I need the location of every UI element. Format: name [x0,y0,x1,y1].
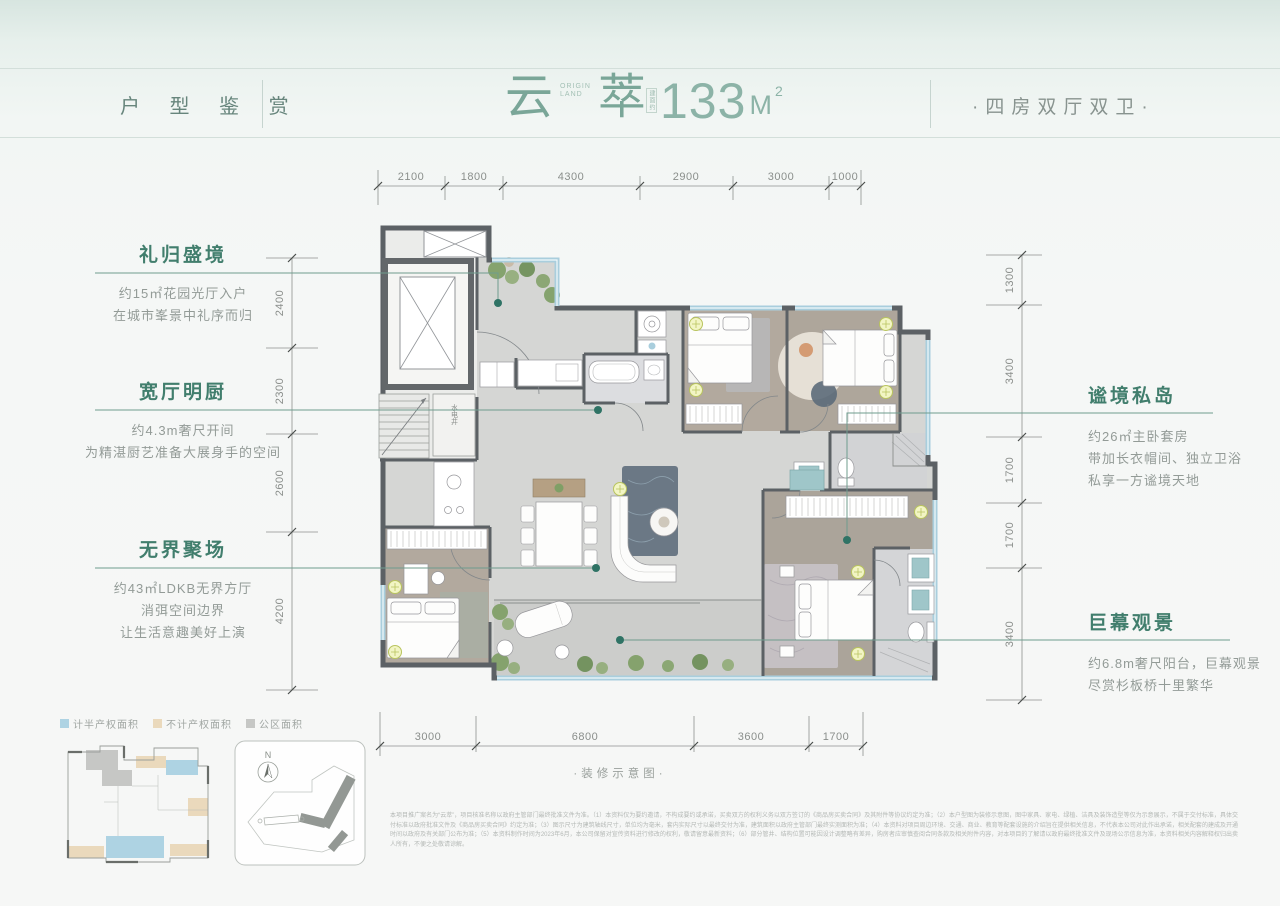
dimension-bottom [376,712,867,756]
legend-swatch-public [246,719,255,728]
stairs [379,394,429,458]
legend-item-public: 公区面积 [246,716,303,731]
legend-swatch-excluded [153,719,162,728]
dim-top-4: 3000 [768,171,794,183]
dim-right-3: 1700 [1004,522,1016,548]
dim-top-3: 2900 [673,171,699,183]
dim-bottom-2: 3600 [738,731,764,743]
utility-shaft: 水电井 [433,394,475,456]
compass-label: N [265,750,272,760]
dim-right-4: 3400 [1004,621,1016,647]
key-plan-patches [68,750,208,858]
dim-bottom-0: 3000 [415,731,441,743]
floor-plan: 水电井 [379,228,935,678]
dim-top-1: 1800 [461,171,487,183]
dim-top-2: 4300 [558,171,584,183]
disclaimer: 本项目推广案名为“云萃”，项目核准名称以政府主管部门最终批准文件为准。（1）本资… [390,812,1238,850]
dim-left-3: 4200 [274,598,286,624]
legend-item-excluded: 不计产权面积 [153,716,232,731]
bath1-fixtures [589,360,664,383]
dim-top-0: 2100 [398,171,424,183]
dim-right-0: 1300 [1004,267,1016,293]
dim-left-0: 2400 [274,290,286,316]
dim-left-2: 2600 [274,470,286,496]
dim-bottom-3: 1700 [823,731,849,743]
legend-label-public: 公区面积 [259,716,303,731]
dim-left-1: 2300 [274,378,286,404]
area-legend: 计半产权面积 不计产权面积 公区面积 [60,716,303,731]
dim-bottom-1: 6800 [572,731,598,743]
laundry [638,311,666,353]
dim-right-1: 3400 [1004,358,1016,384]
legend-label-half: 计半产权面积 [73,716,139,731]
utility-shaft-label: 水电井 [451,403,459,426]
legend-label-excluded: 不计产权面积 [166,716,232,731]
legend-item-half: 计半产权面积 [60,716,139,731]
key-plan-thumbnail [58,740,220,868]
legend-swatch-half [60,719,69,728]
dim-right-2: 1700 [1004,457,1016,483]
site-plan-frame [235,741,365,865]
dim-top-5: 1000 [832,171,858,183]
site-plan-thumbnail: N [234,740,366,866]
plan-caption: ·装修示意图· [480,765,760,781]
